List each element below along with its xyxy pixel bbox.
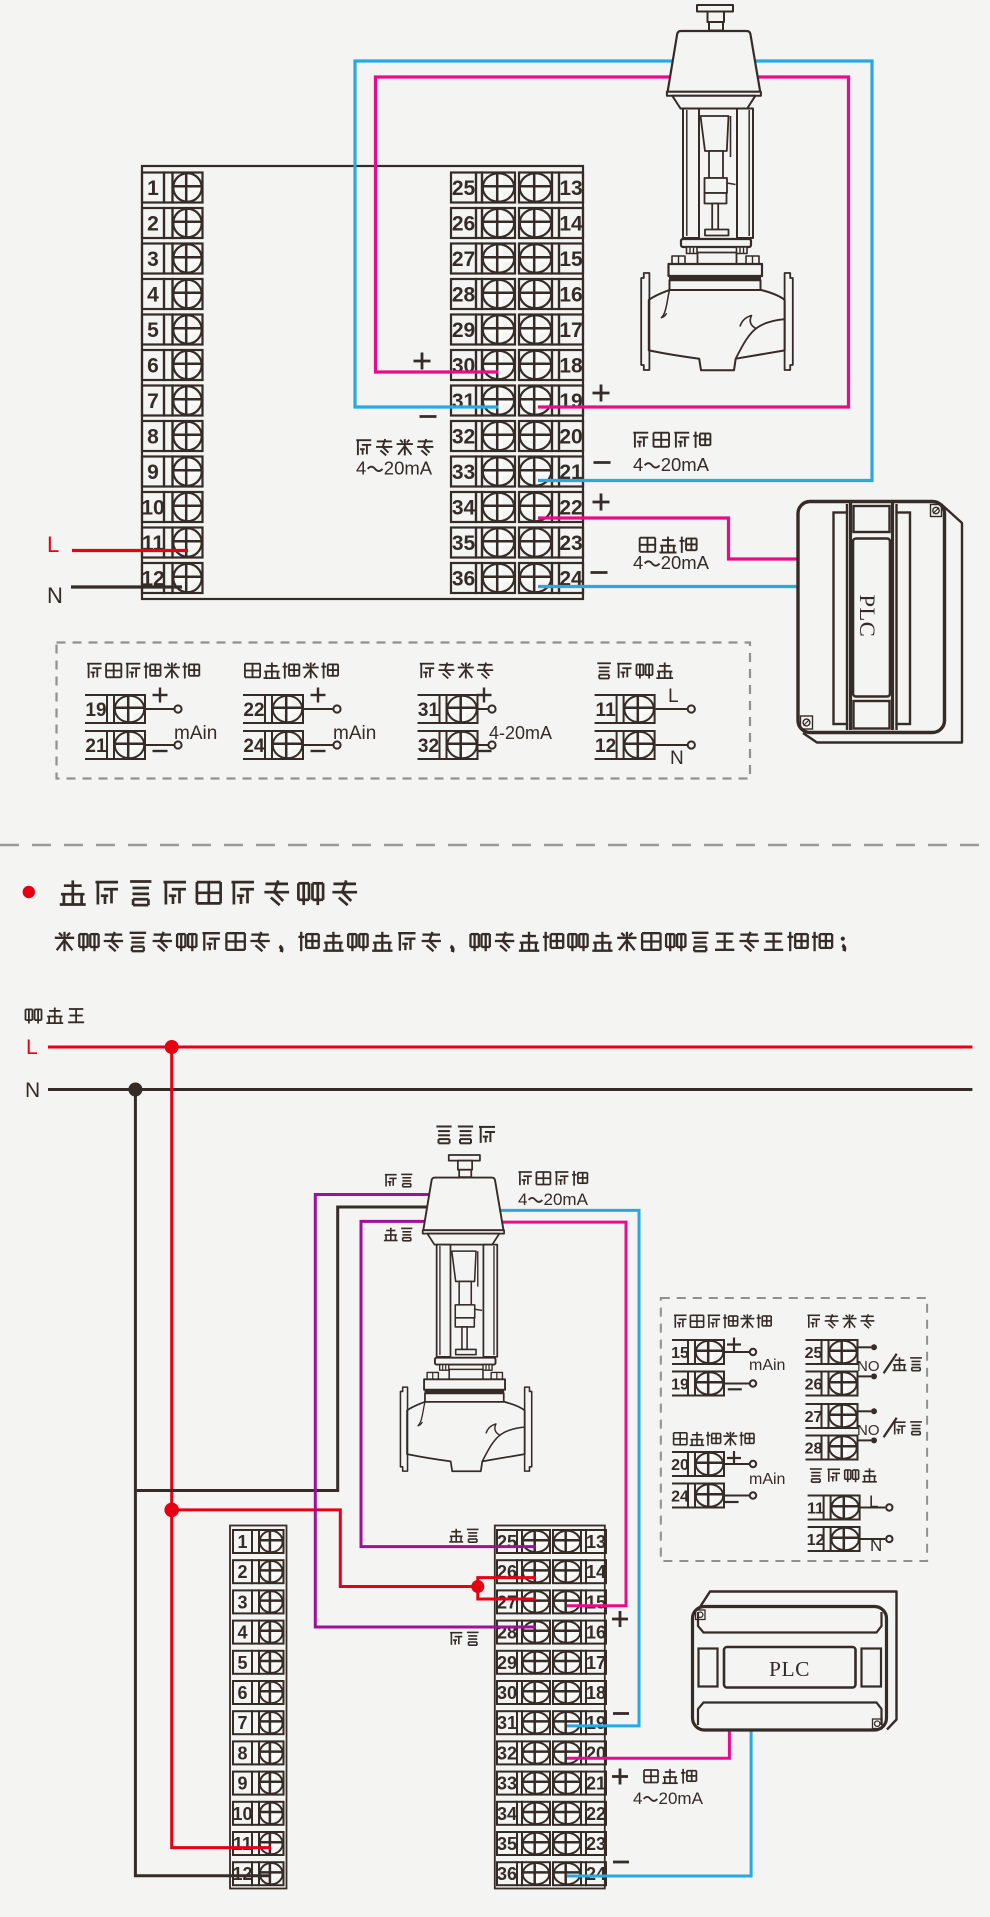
- svg-text:20mA: 20mA: [661, 454, 710, 475]
- svg-text:4-20mA: 4-20mA: [489, 723, 552, 743]
- svg-text:11: 11: [233, 1834, 252, 1854]
- svg-text:4: 4: [633, 454, 643, 475]
- svg-text:13: 13: [586, 1532, 606, 1552]
- svg-text:28: 28: [805, 1440, 823, 1457]
- svg-text:18: 18: [559, 355, 583, 378]
- svg-text:25: 25: [497, 1532, 517, 1552]
- svg-text:1: 1: [147, 177, 159, 200]
- svg-text:4: 4: [633, 1789, 642, 1808]
- svg-text:mAin: mAin: [333, 723, 376, 744]
- svg-text:32: 32: [452, 426, 475, 449]
- svg-text:22: 22: [243, 700, 264, 721]
- svg-text:20: 20: [671, 1457, 689, 1474]
- svg-text:17: 17: [586, 1653, 606, 1673]
- svg-text:15: 15: [559, 248, 583, 271]
- svg-text:1: 1: [237, 1532, 247, 1552]
- svg-text:22: 22: [586, 1804, 606, 1824]
- svg-text:25: 25: [452, 177, 476, 200]
- svg-text:20: 20: [559, 426, 582, 449]
- svg-text:L: L: [47, 532, 59, 557]
- svg-text:NO: NO: [857, 1358, 880, 1375]
- svg-text:20mA: 20mA: [659, 1789, 704, 1808]
- svg-text:15: 15: [671, 1345, 689, 1362]
- svg-text:4: 4: [356, 458, 366, 479]
- svg-text:4: 4: [518, 1190, 527, 1209]
- svg-text:29: 29: [497, 1653, 517, 1673]
- svg-text:9: 9: [237, 1774, 247, 1794]
- svg-text:11: 11: [596, 700, 617, 721]
- svg-text:28: 28: [452, 284, 476, 307]
- svg-text:35: 35: [497, 1834, 517, 1854]
- svg-text:31: 31: [452, 390, 476, 413]
- svg-text:14: 14: [559, 213, 583, 236]
- svg-text:23: 23: [586, 1834, 606, 1854]
- svg-text:PLC: PLC: [855, 595, 880, 638]
- svg-text:2: 2: [147, 213, 159, 236]
- svg-text:20: 20: [586, 1743, 606, 1763]
- svg-text:4: 4: [633, 552, 643, 573]
- svg-text:23: 23: [559, 532, 582, 555]
- svg-text:24: 24: [586, 1864, 606, 1884]
- svg-text:22: 22: [559, 497, 582, 520]
- svg-text:12: 12: [807, 1532, 825, 1549]
- svg-text:31: 31: [497, 1713, 517, 1733]
- svg-text:34: 34: [452, 497, 476, 520]
- svg-text:12: 12: [232, 1864, 252, 1884]
- svg-text:5: 5: [237, 1653, 247, 1673]
- svg-text:L: L: [668, 686, 679, 707]
- svg-text:19: 19: [85, 700, 106, 721]
- svg-text:L: L: [869, 1492, 878, 1511]
- svg-text:27: 27: [452, 248, 475, 271]
- svg-text:31: 31: [418, 700, 440, 721]
- svg-text:19: 19: [671, 1376, 689, 1393]
- svg-text:36: 36: [497, 1864, 517, 1884]
- svg-text:2: 2: [237, 1562, 247, 1582]
- svg-text:3: 3: [147, 248, 159, 271]
- svg-text:10: 10: [141, 497, 164, 520]
- svg-text:N: N: [25, 1079, 40, 1102]
- svg-text:29: 29: [452, 319, 475, 342]
- svg-text:20mA: 20mA: [544, 1190, 589, 1209]
- svg-text:32: 32: [418, 736, 439, 757]
- svg-text:7: 7: [147, 390, 159, 413]
- svg-text:6: 6: [147, 355, 159, 378]
- svg-text:14: 14: [586, 1562, 606, 1582]
- svg-text:24: 24: [243, 736, 265, 757]
- svg-text:17: 17: [559, 319, 582, 342]
- svg-text:mAin: mAin: [749, 1357, 785, 1374]
- svg-text:9: 9: [147, 461, 159, 484]
- svg-text:PLC: PLC: [769, 1657, 810, 1681]
- svg-text:20mA: 20mA: [661, 552, 710, 573]
- svg-text:5: 5: [147, 319, 159, 342]
- svg-text:30: 30: [452, 355, 475, 378]
- svg-text:18: 18: [586, 1683, 606, 1703]
- svg-text:36: 36: [452, 568, 475, 591]
- svg-text:NO: NO: [857, 1422, 880, 1439]
- svg-text:33: 33: [452, 461, 475, 484]
- svg-text:32: 32: [497, 1743, 517, 1763]
- svg-text:7: 7: [237, 1713, 247, 1733]
- svg-text:3: 3: [237, 1592, 247, 1612]
- svg-text:20mA: 20mA: [384, 458, 433, 479]
- svg-text:12: 12: [595, 736, 616, 757]
- svg-text:16: 16: [559, 284, 582, 307]
- svg-text:19: 19: [586, 1713, 606, 1733]
- svg-text:26: 26: [497, 1562, 517, 1582]
- svg-text:mAin: mAin: [174, 723, 217, 744]
- svg-text:8: 8: [237, 1743, 247, 1763]
- svg-text:21: 21: [85, 736, 107, 757]
- svg-text:21: 21: [586, 1774, 606, 1794]
- svg-text:N: N: [670, 748, 684, 769]
- svg-text:4: 4: [237, 1623, 247, 1643]
- svg-text:27: 27: [497, 1592, 517, 1612]
- svg-text:27: 27: [805, 1409, 823, 1426]
- svg-text:N: N: [870, 1536, 882, 1555]
- svg-text:L: L: [26, 1036, 38, 1059]
- svg-text:11: 11: [807, 1500, 824, 1517]
- svg-text:8: 8: [147, 426, 159, 449]
- svg-text:6: 6: [237, 1683, 247, 1703]
- svg-text:35: 35: [452, 532, 476, 555]
- svg-text:10: 10: [232, 1804, 252, 1824]
- svg-text:26: 26: [452, 213, 475, 236]
- svg-text:mAin: mAin: [749, 1471, 785, 1488]
- svg-text:26: 26: [805, 1376, 823, 1393]
- svg-text:4: 4: [147, 284, 159, 307]
- svg-text:16: 16: [586, 1623, 606, 1643]
- svg-text:25: 25: [805, 1345, 823, 1362]
- svg-text:13: 13: [559, 177, 582, 200]
- svg-text:19: 19: [559, 390, 582, 413]
- svg-text:15: 15: [586, 1592, 606, 1612]
- svg-text:34: 34: [497, 1804, 517, 1824]
- svg-text:30: 30: [497, 1683, 517, 1703]
- svg-text:N: N: [47, 583, 63, 608]
- svg-text:33: 33: [497, 1774, 517, 1794]
- svg-text:24: 24: [671, 1488, 689, 1505]
